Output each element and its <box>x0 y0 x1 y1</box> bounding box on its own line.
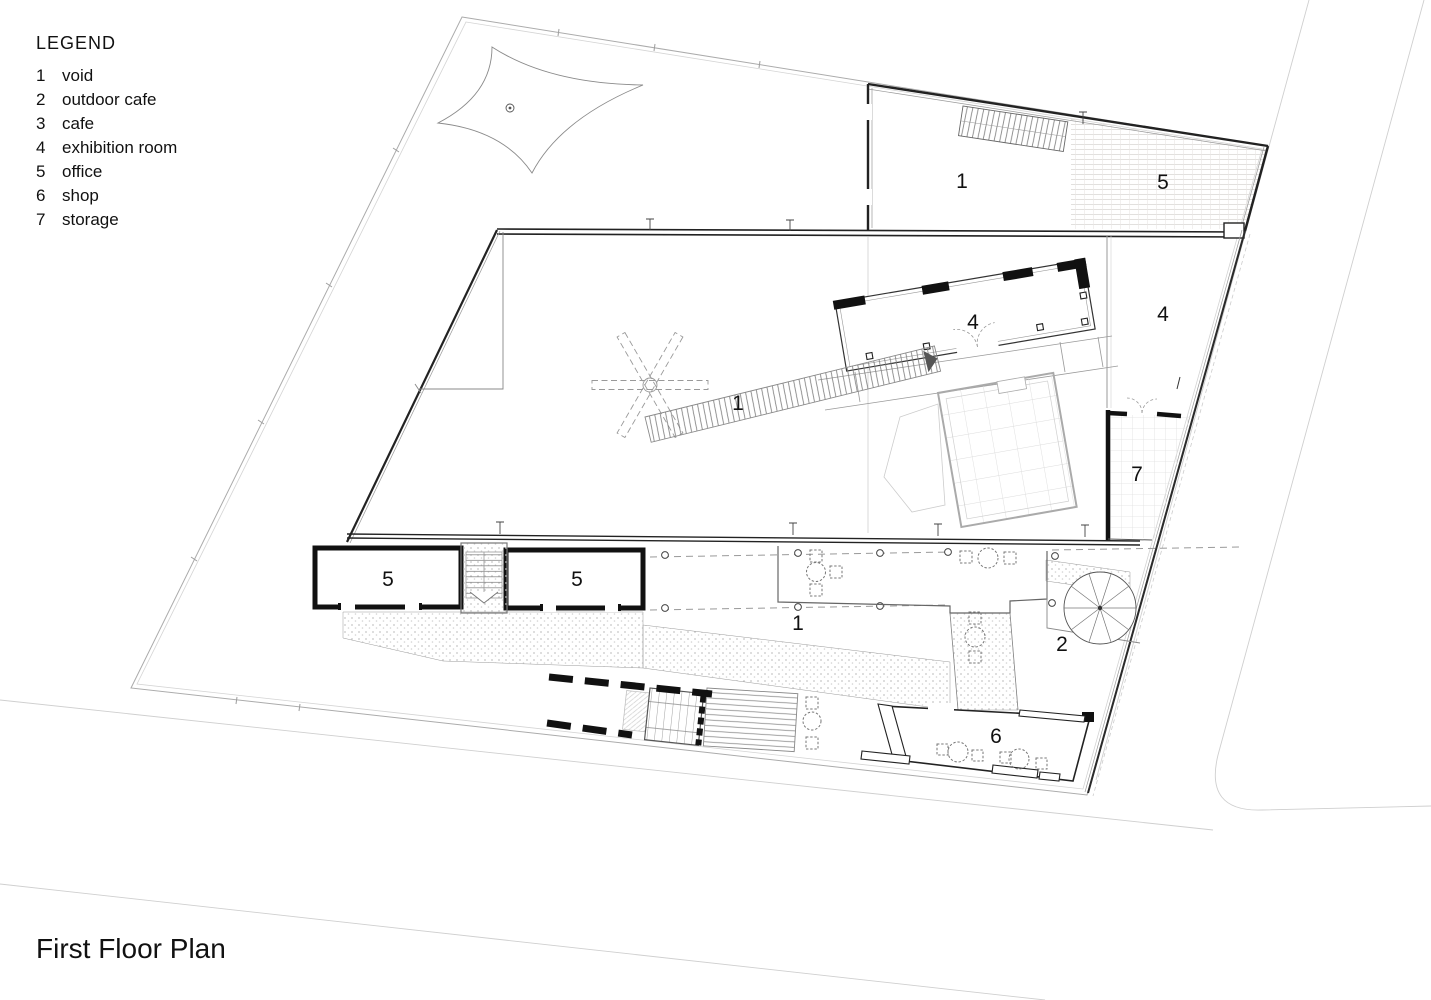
legend-item-num: 1 <box>36 64 62 88</box>
legend-item-label: void <box>62 64 93 88</box>
legend-item-num: 2 <box>36 88 62 112</box>
canopy-sail <box>438 47 643 173</box>
legend-heading: LEGEND <box>36 33 177 54</box>
legend-item-num: 4 <box>36 136 62 160</box>
legend-item-label: storage <box>62 208 119 232</box>
room-label-exhibition-b: 4 <box>1157 303 1169 326</box>
stair-core <box>461 543 507 613</box>
legend-item-num: 5 <box>36 160 62 184</box>
mid-stair <box>645 346 941 442</box>
cafe-table-set <box>807 548 1017 596</box>
legend-item-num: 6 <box>36 184 62 208</box>
room-label-shop: 6 <box>990 725 1002 748</box>
grid-exhibit-box <box>938 372 1077 527</box>
legend-item-void: 1 void <box>36 64 177 88</box>
legend-item-label: exhibition room <box>62 136 177 160</box>
room-label-void-top: 1 <box>956 170 968 193</box>
legend-item-outdoor-cafe: 2 outdoor cafe <box>36 88 177 112</box>
legend-item-label: outdoor cafe <box>62 88 157 112</box>
legend: LEGEND 1 void 2 outdoor cafe 3 cafe 4 ex… <box>36 33 177 232</box>
upper-block <box>864 84 1268 231</box>
floor-inlay-outline <box>884 404 945 512</box>
corridor-columns <box>650 547 1240 611</box>
exhibition-room-4 <box>833 258 1098 375</box>
room-label-void-center: 1 <box>732 392 744 415</box>
legend-item-shop: 6 shop <box>36 184 177 208</box>
floor-plan-sheet: 1 5 4 4 1 7 5 5 1 2 6 LEGEND 1 void 2 ou… <box>0 0 1431 1000</box>
legend-item-cafe: 3 cafe <box>36 112 177 136</box>
legend-item-label: shop <box>62 184 99 208</box>
legend-item-exhibition-room: 4 exhibition room <box>36 136 177 160</box>
double-door-arcs <box>1127 398 1157 413</box>
spiral-stair <box>1064 572 1136 644</box>
room-label-outdoor-cafe: 2 <box>1056 633 1068 656</box>
room-label-exhibition-a: 4 <box>967 311 979 334</box>
room-label-office-a: 5 <box>382 568 394 591</box>
ramp <box>703 688 797 752</box>
room-label-storage: 7 <box>1131 463 1143 486</box>
shop-6 <box>861 703 1094 781</box>
legend-item-label: office <box>62 160 102 184</box>
bottom-offices <box>315 543 643 613</box>
legend-item-num: 3 <box>36 112 62 136</box>
sheet-title: First Floor Plan <box>36 933 226 965</box>
legend-item-label: cafe <box>62 112 94 136</box>
room-label-office-top: 5 <box>1157 171 1169 194</box>
legend-item-office: 5 office <box>36 160 177 184</box>
entry-stair <box>622 686 704 746</box>
legend-item-storage: 7 storage <box>36 208 177 232</box>
floor-plan-drawing: 1 5 4 4 1 7 5 5 1 2 6 <box>0 0 1431 1000</box>
legend-item-num: 7 <box>36 208 62 232</box>
room-label-void-gallery: 1 <box>792 612 804 635</box>
room-label-office-b: 5 <box>571 568 583 591</box>
